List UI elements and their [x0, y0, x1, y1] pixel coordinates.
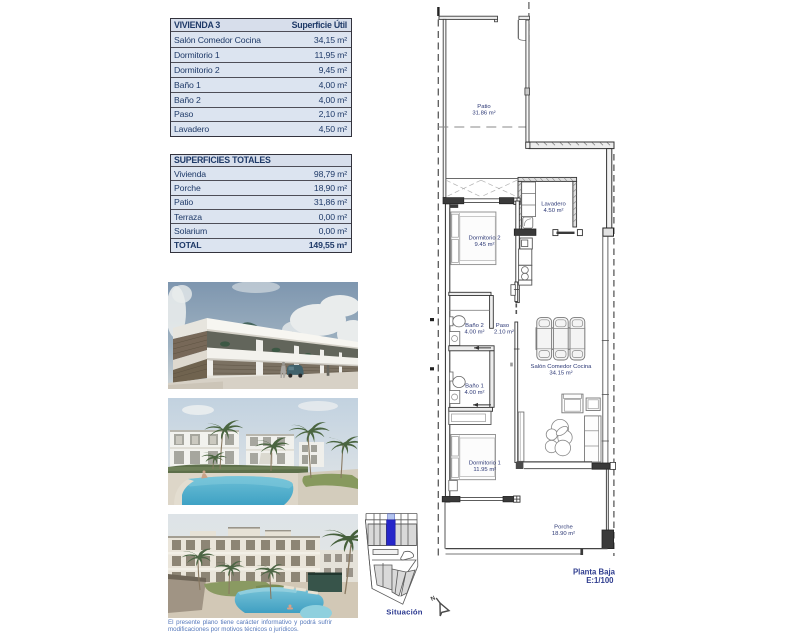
svg-text:Dormitorio 1: Dormitorio 1: [469, 461, 501, 467]
svg-text:2.10 m²: 2.10 m²: [494, 330, 514, 336]
svg-text:Paso: Paso: [496, 323, 510, 329]
svg-text:Patio: Patio: [477, 104, 491, 110]
svg-text:4.00 m²: 4.00 m²: [465, 390, 485, 396]
svg-text:Baño 1: Baño 1: [465, 384, 484, 390]
svg-text:Porche: Porche: [554, 525, 573, 531]
svg-text:N: N: [430, 596, 436, 603]
svg-text:31.86 m²: 31.86 m²: [472, 111, 495, 117]
svg-text:18.90 m²: 18.90 m²: [552, 531, 575, 537]
svg-text:Salón Comedor Cocina: Salón Comedor Cocina: [531, 364, 593, 370]
svg-text:Lavadero: Lavadero: [541, 202, 566, 208]
svg-text:Baño 2: Baño 2: [465, 323, 484, 329]
svg-text:Situación: Situación: [386, 608, 423, 617]
svg-text:Dormitorio 2: Dormitorio 2: [468, 236, 500, 242]
svg-text:11.95 m²: 11.95 m²: [473, 467, 496, 473]
svg-text:4.00 m²: 4.00 m²: [465, 330, 485, 336]
svg-text:9.45 m²: 9.45 m²: [475, 242, 495, 248]
svg-text:E:1/100: E:1/100: [586, 576, 614, 585]
svg-text:34.15 m²: 34.15 m²: [549, 371, 572, 377]
svg-text:4.50 m²: 4.50 m²: [544, 208, 564, 214]
